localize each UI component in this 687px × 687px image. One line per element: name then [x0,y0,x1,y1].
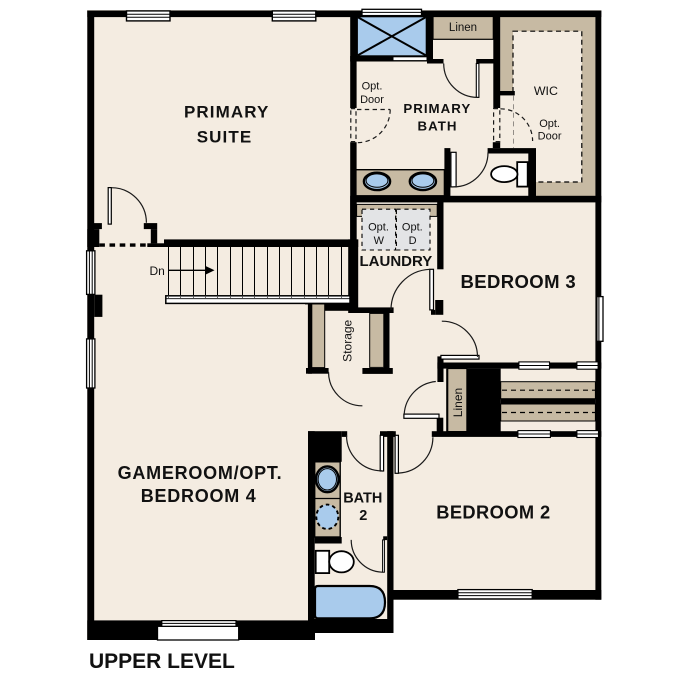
svg-text:UPPER LEVEL: UPPER LEVEL [89,650,235,673]
svg-text:SUITE: SUITE [197,127,253,146]
svg-text:Dn: Dn [150,264,165,278]
svg-text:Opt.: Opt. [402,221,423,233]
svg-text:BEDROOM 4: BEDROOM 4 [141,486,257,506]
svg-text:BATH: BATH [343,491,382,507]
svg-text:Opt.: Opt. [539,118,560,130]
svg-text:Door: Door [538,131,562,143]
svg-text:BATH: BATH [418,118,458,133]
svg-text:PRIMARY: PRIMARY [184,102,269,121]
svg-text:GAMEROOM/OPT.: GAMEROOM/OPT. [118,463,283,483]
svg-text:D: D [409,235,417,247]
svg-text:Linen: Linen [449,22,477,34]
svg-text:2: 2 [359,508,367,524]
svg-text:BEDROOM 3: BEDROOM 3 [460,271,576,292]
svg-text:LAUNDRY: LAUNDRY [360,253,433,270]
svg-text:W: W [374,235,385,247]
svg-text:Linen: Linen [451,388,465,417]
svg-text:Door: Door [360,94,384,106]
svg-text:BEDROOM 2: BEDROOM 2 [436,501,550,522]
svg-text:Opt.: Opt. [368,221,389,233]
svg-text:PRIMARY: PRIMARY [403,101,471,116]
svg-text:Storage: Storage [340,319,354,361]
svg-text:WIC: WIC [534,84,558,98]
svg-text:Opt.: Opt. [362,81,383,93]
